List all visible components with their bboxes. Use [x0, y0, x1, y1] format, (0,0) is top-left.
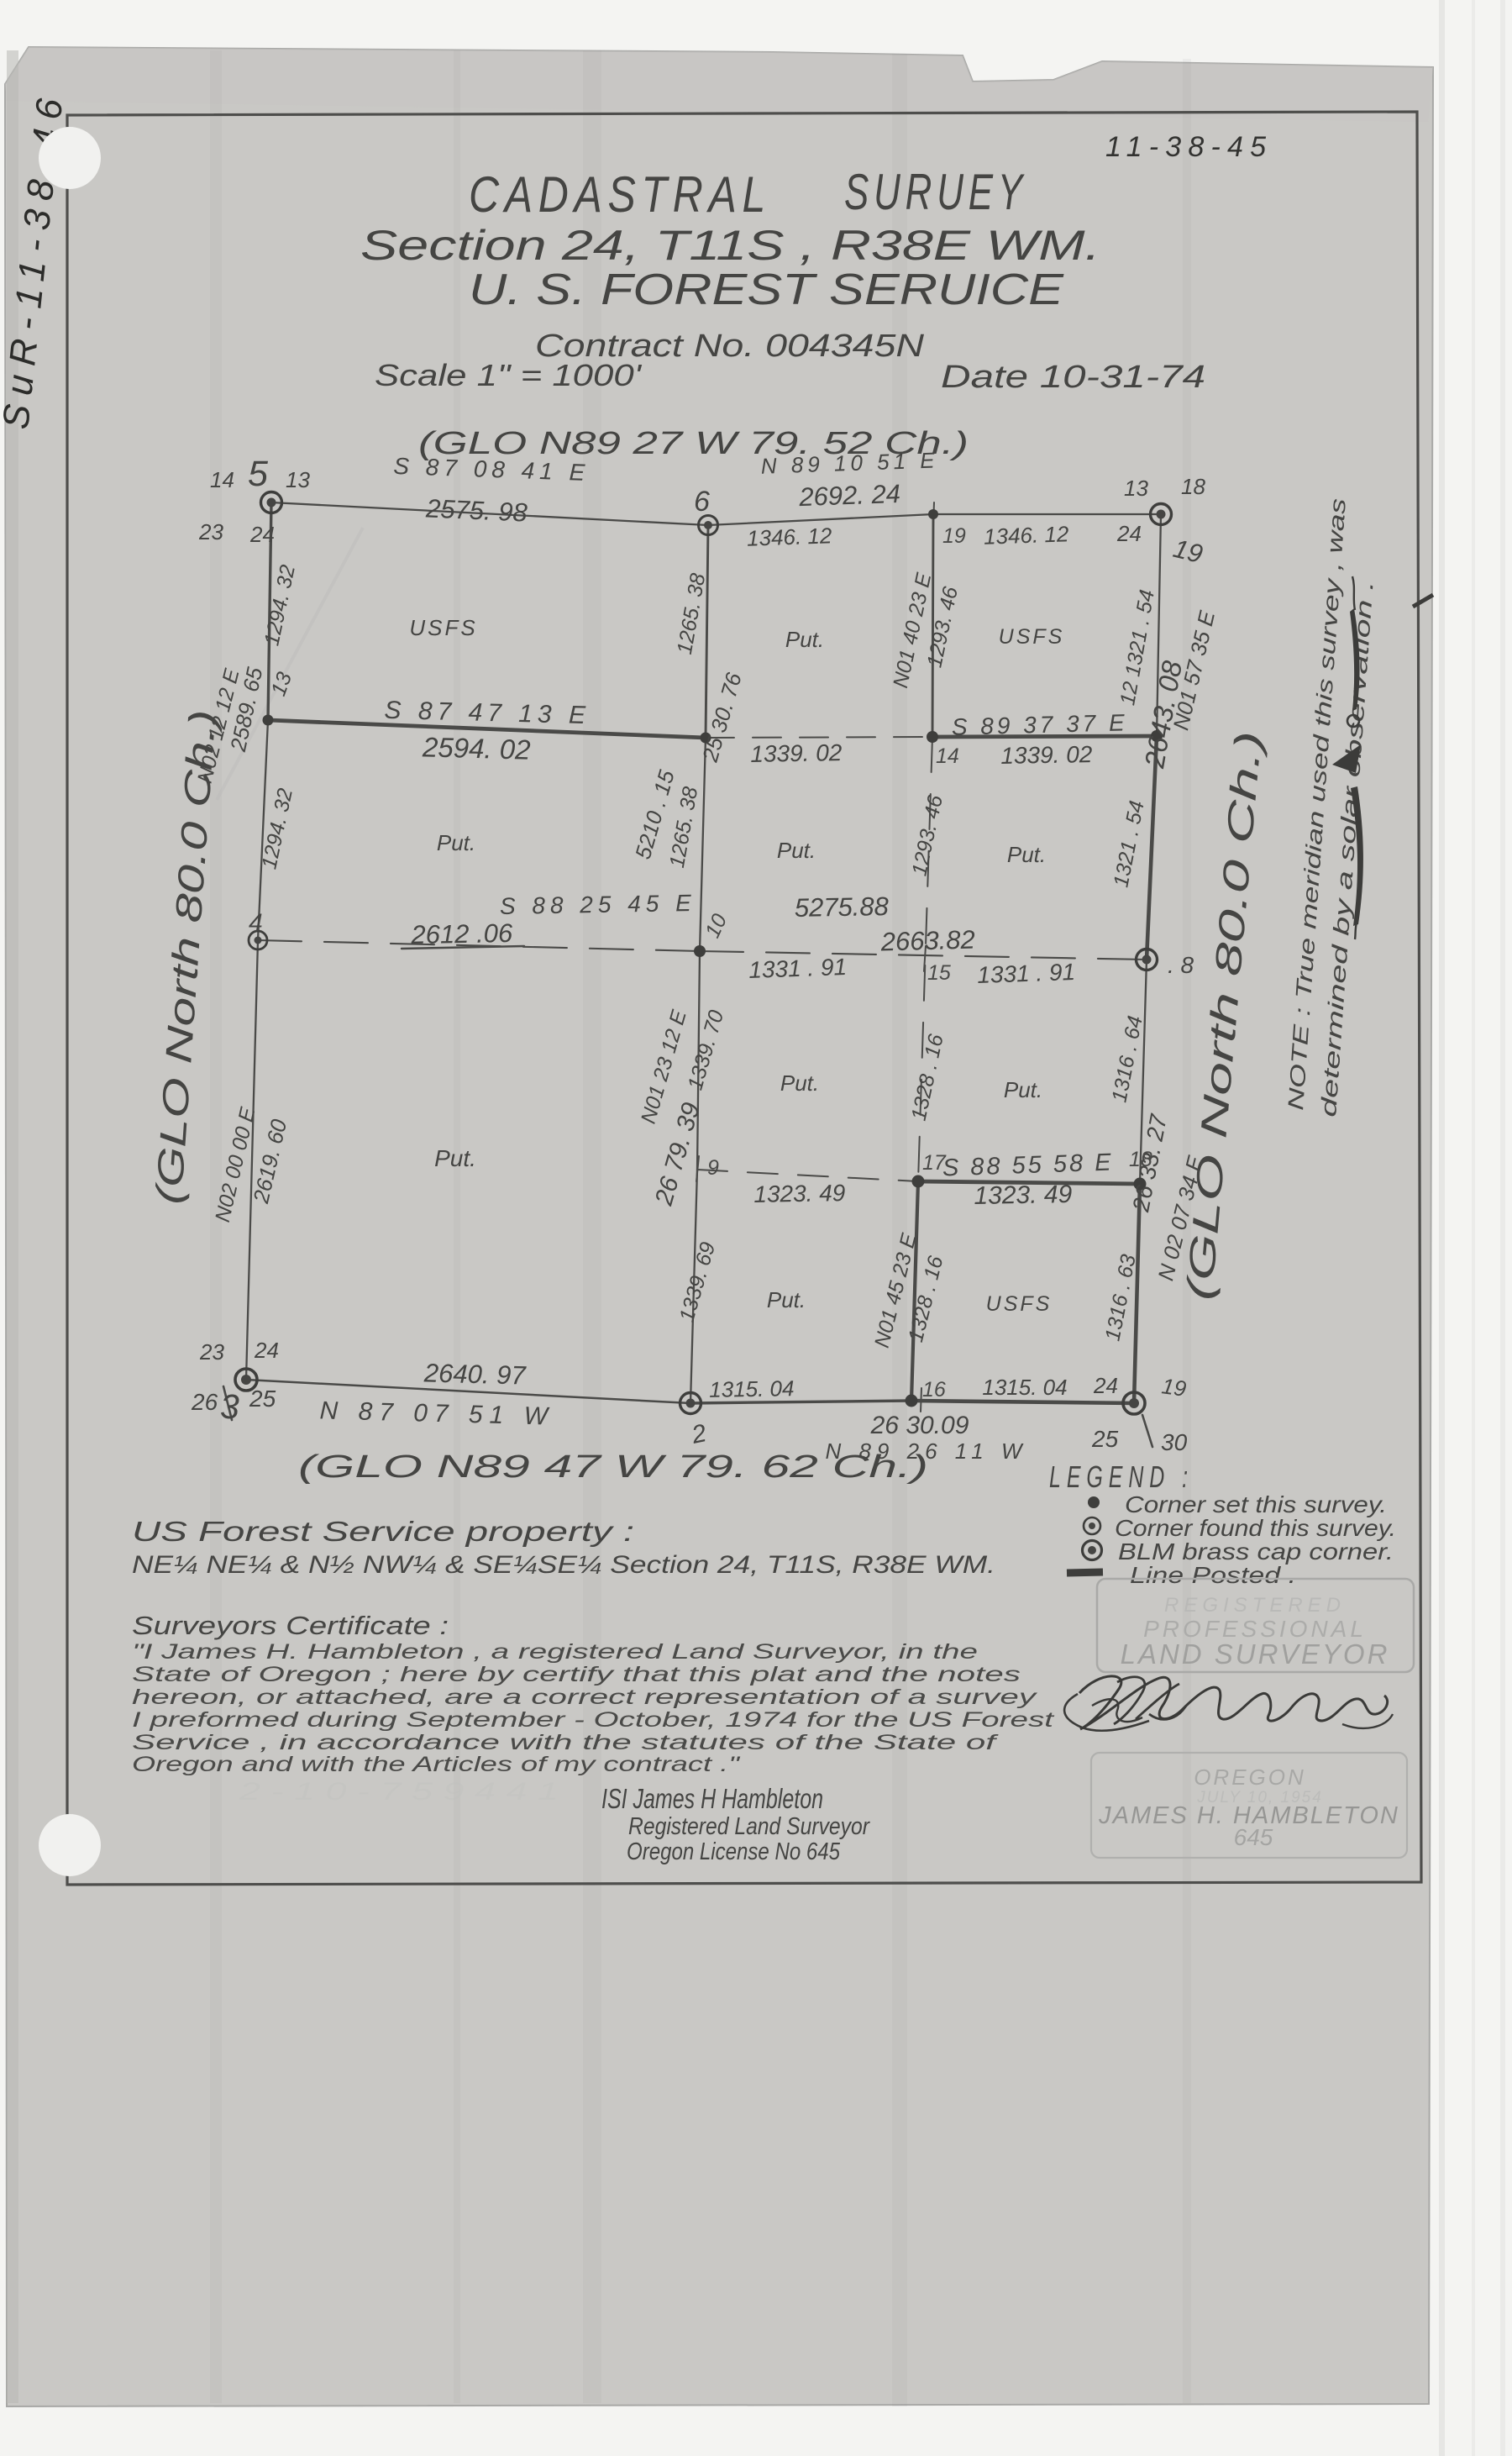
svg-text:Put.: Put.: [1007, 842, 1046, 867]
svg-text:2612 .06: 2612 .06: [410, 918, 513, 949]
svg-text:S 88 25 45 E: S 88 25 45 E: [500, 890, 696, 919]
svg-text:18: 18: [1181, 474, 1205, 499]
svg-text:NE¼ NE¼ & N½ NW¼ & SE¼SE¼: NE¼ NE¼ & N½ NW¼ & SE¼SE¼ Section 24, T1…: [132, 1551, 995, 1579]
svg-text:Oregon License No 645: Oregon License No 645: [627, 1838, 841, 1865]
svg-text:U. S. FOREST SERUICE: U. S. FOREST SERUICE: [469, 266, 1065, 314]
svg-text:USFS: USFS: [999, 625, 1065, 649]
svg-text:23: 23: [199, 1339, 224, 1365]
svg-text:24: 24: [254, 1338, 279, 1363]
svg-text:3: 3: [220, 1387, 239, 1426]
svg-text:Corner found this survey.: Corner found this survey.: [1115, 1515, 1396, 1541]
svg-text:11-38-45: 11-38-45: [1105, 131, 1272, 163]
svg-text:hereon, or attached, are a: hereon, or attached, are a correct repre…: [132, 1686, 1037, 1709]
svg-text:2575. 98: 2575. 98: [424, 493, 528, 527]
svg-text:1315. 04: 1315. 04: [709, 1375, 795, 1402]
svg-text:26: 26: [191, 1389, 218, 1415]
svg-text:14: 14: [936, 744, 959, 768]
svg-text:Oregon and with the Ar: Oregon and with the Articles of my contr…: [132, 1753, 741, 1776]
svg-text:USFS: USFS: [986, 1292, 1053, 1316]
svg-text:23: 23: [198, 519, 223, 544]
svg-text:OREGON: OREGON: [1194, 1764, 1306, 1790]
svg-text:"I James H. Hambleton , a r: "I James H. Hambleton , a registered Lan…: [132, 1640, 978, 1664]
svg-text:BLM brass cap corner.: BLM brass cap corner.: [1118, 1538, 1394, 1565]
svg-text:24: 24: [1093, 1373, 1118, 1398]
svg-text:LEGEND :: LEGEND :: [1049, 1459, 1194, 1494]
svg-text:1339. 02: 1339. 02: [750, 739, 843, 767]
svg-text:S 89 37 37 E: S 89 37 37 E: [951, 709, 1128, 739]
svg-text:4: 4: [249, 909, 263, 937]
svg-text:645: 645: [1234, 1824, 1273, 1850]
svg-text:24: 24: [249, 522, 275, 547]
svg-text:Surveyors Certificate :: Surveyors Certificate :: [132, 1611, 449, 1640]
svg-text:N 89 26 11 W: N 89 26 11 W: [825, 1438, 1027, 1464]
svg-text:1346. 12: 1346. 12: [984, 521, 1070, 550]
svg-text:Put.: Put.: [767, 1287, 806, 1312]
svg-text:19: 19: [942, 524, 966, 548]
svg-text:2692. 24: 2692. 24: [798, 479, 901, 512]
svg-text:2663.82: 2663.82: [879, 925, 975, 957]
svg-text:State of Oregon ; here by: State of Oregon ; here by certify that t…: [132, 1663, 1021, 1686]
svg-text:US Forest Service property: US Forest Service property :: [132, 1516, 634, 1547]
svg-text:9: 9: [707, 1156, 719, 1180]
svg-text:24: 24: [1116, 521, 1142, 546]
svg-text:13: 13: [1124, 476, 1148, 501]
svg-text:Put.: Put.: [777, 838, 816, 863]
svg-text:Put.: Put.: [437, 830, 475, 855]
svg-text:Registered Land Surveyor: Registered Land Surveyor: [628, 1813, 870, 1840]
svg-text:25: 25: [1091, 1426, 1119, 1452]
svg-text:2594. 02: 2594. 02: [422, 731, 531, 765]
svg-text:Section 24, T11S , R38E W: Section 24, T11S , R38E WM.: [360, 222, 1100, 269]
svg-text:1323. 49: 1323. 49: [753, 1180, 846, 1207]
svg-text:26 30.09: 26 30.09: [870, 1412, 969, 1439]
svg-text:1323. 49: 1323. 49: [974, 1181, 1073, 1210]
svg-text:USFS: USFS: [409, 615, 477, 640]
svg-text:Corner set this survey.: Corner set this survey.: [1125, 1491, 1387, 1517]
svg-text:1346. 12: 1346. 12: [747, 523, 833, 551]
svg-text:Put.: Put.: [1004, 1077, 1042, 1102]
svg-text:1331 . 91: 1331 . 91: [977, 959, 1076, 988]
svg-text:Put.: Put.: [434, 1145, 476, 1171]
svg-text:LAND SURVEYOR: LAND SURVEYOR: [1121, 1638, 1390, 1670]
svg-text:Put.: Put.: [785, 627, 824, 652]
svg-text:Service , in accordance w: Service , in accordance with the statute…: [132, 1731, 1000, 1754]
svg-text:19: 19: [1160, 1373, 1188, 1402]
svg-text:ISI James H Hambleton: ISI James H Hambleton: [601, 1783, 823, 1814]
svg-text:15: 15: [927, 961, 951, 985]
svg-text:I preformed during Septe: I preformed during September - October, …: [132, 1708, 1055, 1732]
svg-text:Line Posted .: Line Posted .: [1130, 1562, 1296, 1588]
svg-text:16: 16: [922, 1378, 946, 1402]
svg-text:1315. 04: 1315. 04: [982, 1375, 1067, 1400]
svg-text:6: 6: [694, 486, 710, 518]
svg-text:25: 25: [249, 1386, 276, 1412]
svg-text:S 87 47 13 E: S 87 47 13 E: [384, 697, 591, 729]
svg-text:2 - 1 0 - 7 5 9 4 4 1: 2 - 1 0 - 7 5 9 4 4 1: [239, 1778, 559, 1806]
svg-text:5: 5: [248, 454, 269, 494]
svg-text:Scale 1" = 1000': Scale 1" = 1000': [375, 358, 642, 392]
svg-text:18: 18: [1129, 1148, 1152, 1171]
svg-text:Date 10-31-74: Date 10-31-74: [941, 360, 1205, 395]
svg-text:14: 14: [210, 467, 234, 492]
svg-text:2640. 97: 2640. 97: [423, 1358, 528, 1390]
svg-text:. 8: . 8: [1168, 952, 1194, 978]
svg-text:Put.: Put.: [780, 1070, 819, 1096]
svg-text:13: 13: [286, 467, 310, 492]
svg-text:SURUEY: SURUEY: [844, 164, 1027, 220]
svg-text:REGISTERED: REGISTERED: [1164, 1594, 1346, 1617]
svg-text:1331 . 91: 1331 . 91: [748, 954, 848, 983]
svg-text:5275.88: 5275.88: [794, 891, 889, 923]
svg-text:CADASTRAL: CADASTRAL: [469, 166, 771, 223]
svg-text:1339. 02: 1339. 02: [1000, 741, 1093, 769]
svg-text:30: 30: [1161, 1429, 1188, 1455]
